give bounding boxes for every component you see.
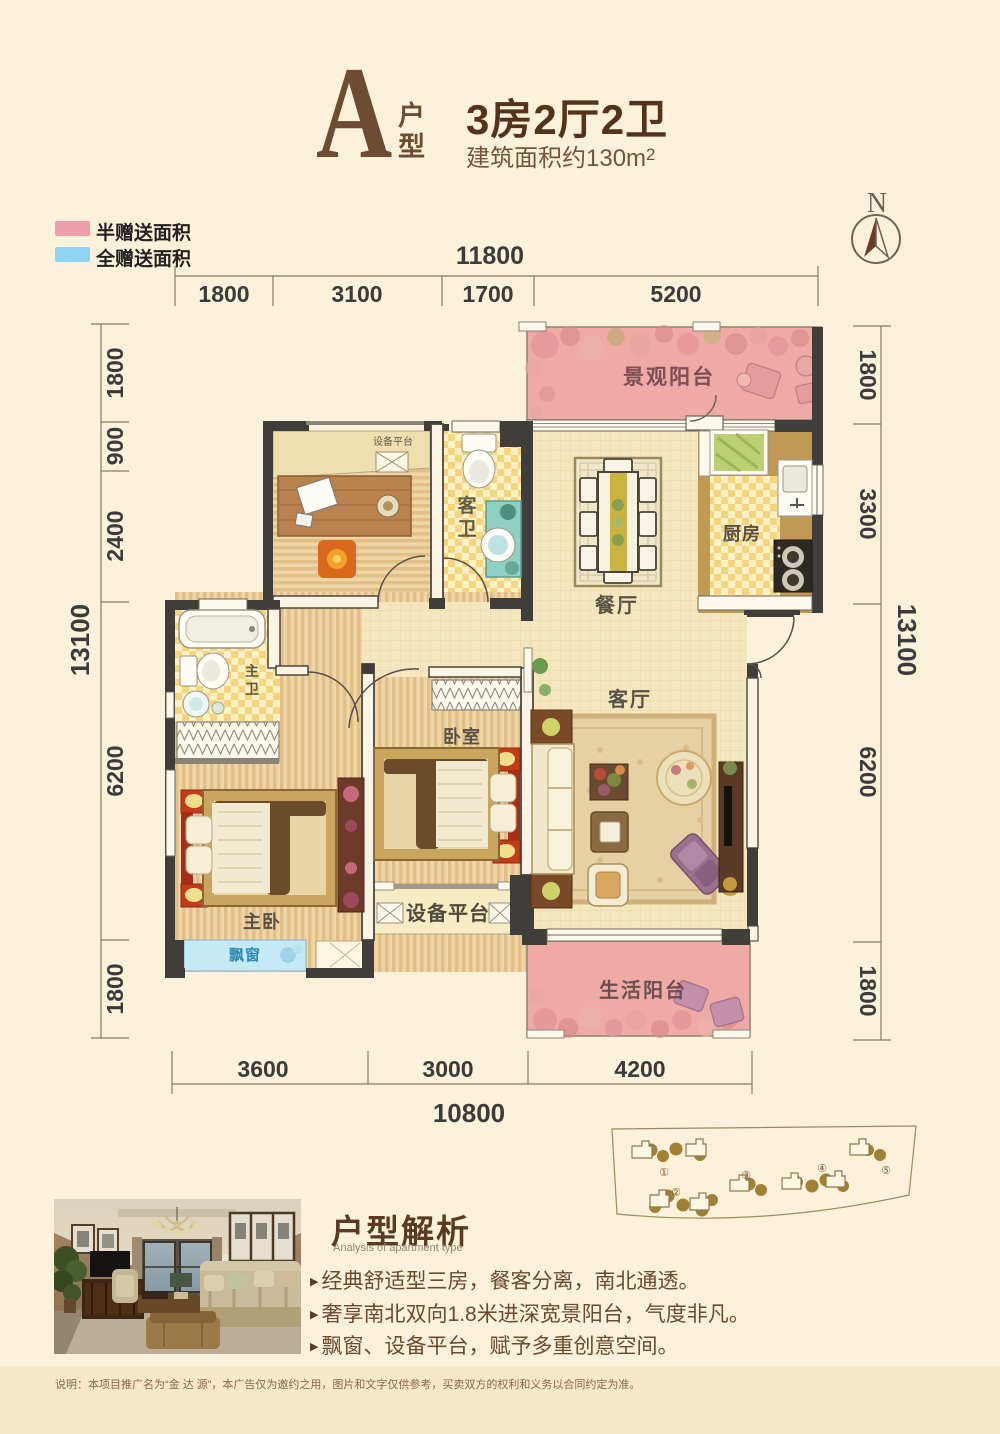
svg-text:客: 客 xyxy=(457,494,477,517)
svg-text:⑤: ⑤ xyxy=(881,1165,891,1177)
svg-text:3600: 3600 xyxy=(237,1056,288,1082)
svg-text:4200: 4200 xyxy=(614,1056,665,1082)
svg-text:主: 主 xyxy=(245,663,259,679)
svg-text:餐厅: 餐厅 xyxy=(595,593,639,617)
svg-text:13100: 13100 xyxy=(65,604,95,676)
svg-text:生活阳台: 生活阳台 xyxy=(599,978,687,1002)
svg-text:3300: 3300 xyxy=(855,488,881,539)
svg-text:1800: 1800 xyxy=(198,281,249,307)
svg-text:④: ④ xyxy=(817,1163,827,1175)
svg-text:②: ② xyxy=(671,1187,681,1199)
svg-text:1800: 1800 xyxy=(102,347,128,398)
svg-text:5200: 5200 xyxy=(650,281,701,307)
svg-text:卫: 卫 xyxy=(457,519,476,540)
svg-text:厨房: 厨房 xyxy=(723,523,761,544)
svg-text:1800: 1800 xyxy=(855,349,881,400)
svg-text:1700: 1700 xyxy=(462,281,513,307)
svg-text:①: ① xyxy=(659,1167,669,1179)
svg-text:2400: 2400 xyxy=(102,510,128,561)
svg-text:设备平台: 设备平台 xyxy=(373,435,413,448)
svg-text:设备平台: 设备平台 xyxy=(406,901,490,925)
svg-text:卫: 卫 xyxy=(245,681,259,697)
svg-text:卧室: 卧室 xyxy=(443,726,481,747)
svg-text:900: 900 xyxy=(102,427,128,465)
svg-text:景观阳台: 景观阳台 xyxy=(623,365,715,389)
svg-text:3100: 3100 xyxy=(331,281,382,307)
svg-text:客厅: 客厅 xyxy=(607,687,652,711)
svg-text:11800: 11800 xyxy=(456,242,524,270)
svg-text:13100: 13100 xyxy=(892,604,922,676)
svg-text:1800: 1800 xyxy=(855,965,881,1016)
svg-text:主卧: 主卧 xyxy=(243,911,281,932)
svg-text:1800: 1800 xyxy=(102,963,128,1014)
svg-text:10800: 10800 xyxy=(433,1098,505,1128)
svg-text:3000: 3000 xyxy=(422,1056,473,1082)
svg-text:③: ③ xyxy=(741,1170,751,1182)
svg-text:6200: 6200 xyxy=(102,745,128,796)
svg-text:6200: 6200 xyxy=(855,746,881,797)
svg-text:飘窗: 飘窗 xyxy=(229,946,261,964)
